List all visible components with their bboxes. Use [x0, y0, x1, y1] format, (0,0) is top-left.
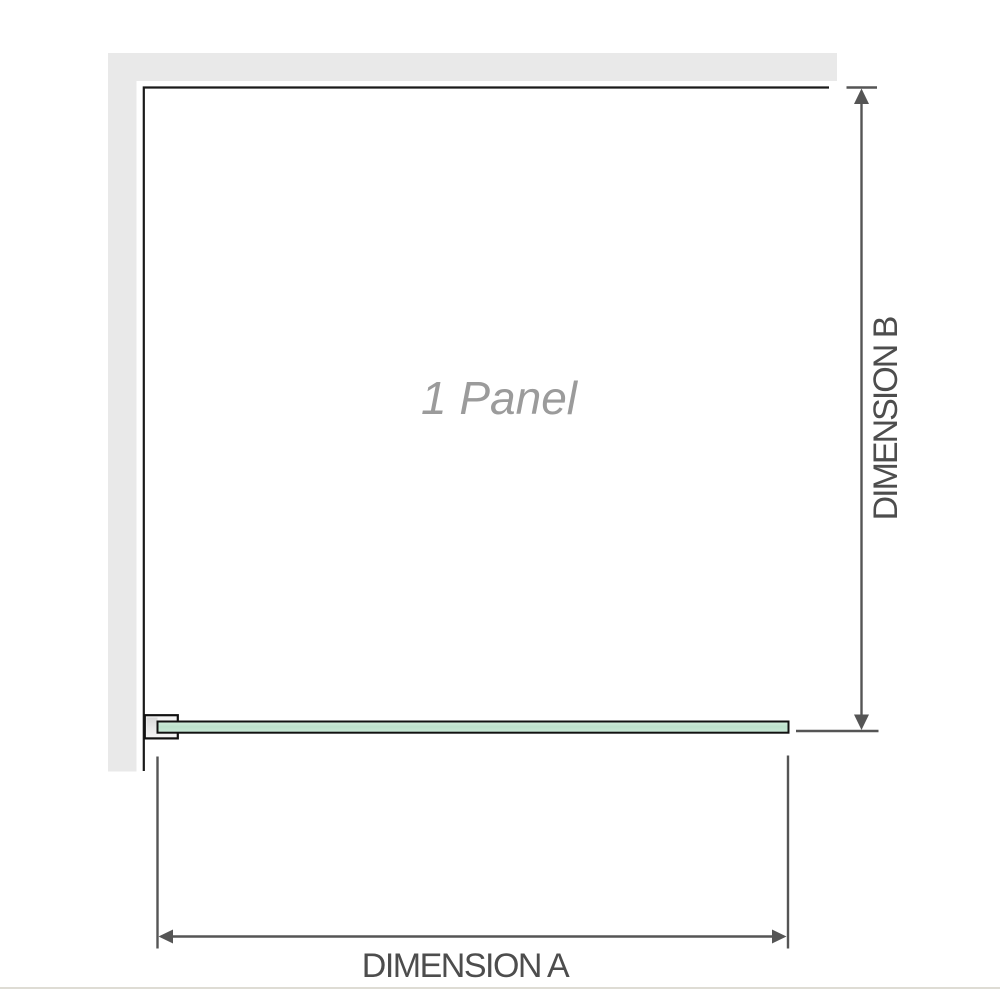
svg-text:1 Panel: 1 Panel — [421, 372, 579, 424]
svg-text:DIMENSION B: DIMENSION B — [867, 317, 905, 520]
svg-text:DIMENSION A: DIMENSION A — [362, 947, 570, 985]
